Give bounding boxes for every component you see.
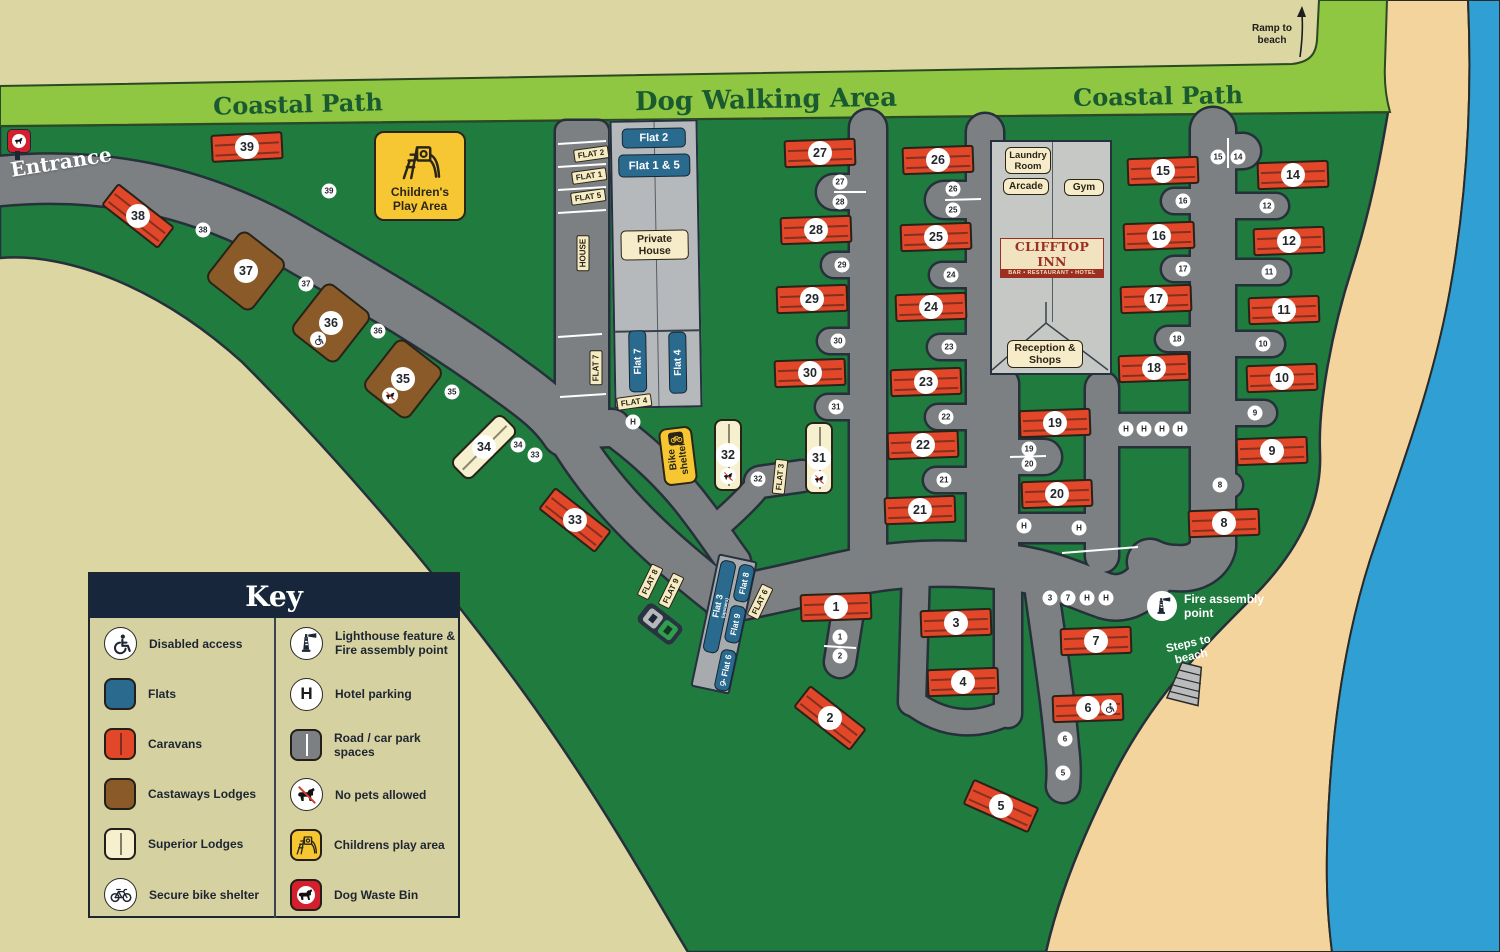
unit-25: 25 (900, 222, 973, 252)
parking-spot-H: H (1080, 591, 1095, 606)
parking-spot-21: 21 (937, 473, 952, 488)
flats-building-north: Flat 2 Flat 1 & 5 Private House Flat 7 F… (609, 119, 702, 408)
parking-spot-30: 30 (831, 334, 846, 349)
play-area-label: Children's Play Area (378, 185, 462, 213)
unit-30: 30 (774, 358, 847, 388)
unit-22: 22 (887, 430, 960, 460)
arcade-label: Arcade (1003, 178, 1049, 195)
unit-27: 27 (784, 138, 857, 168)
unit-number: 19 (1043, 411, 1067, 435)
bike-icon (104, 878, 137, 911)
key-item: Disabled access (90, 627, 274, 660)
parking-spot-9: 9 (1248, 406, 1263, 421)
unit-number: 24 (919, 295, 943, 319)
unit-number: 16 (1147, 224, 1171, 248)
private-house-label: Private House (620, 229, 689, 260)
playground-icon (398, 143, 442, 186)
parking-spot-7: 7 (1061, 591, 1076, 606)
unit-number: 4 (951, 670, 975, 694)
key-item: Flats (90, 678, 274, 710)
unit-39: 39 (210, 131, 283, 163)
unit-1: 1 (800, 592, 873, 622)
map-key-panel: Key Disabled accessFlatsCaravansCastaway… (88, 572, 460, 918)
dog-walking-area-label: Dog Walking Area (635, 83, 898, 118)
coastal-path-label-right: Coastal Path (1073, 80, 1243, 112)
ramp-to-beach-label: Ramp to beach (1243, 23, 1301, 47)
lighthouse-icon (1152, 597, 1172, 615)
lighthouse-icon (290, 627, 323, 660)
parking-spot-37: 37 (299, 277, 314, 292)
parking-spot-14: 14 (1231, 150, 1246, 165)
holiday-park-map: Coastal Path Dog Walking Area Coastal Pa… (0, 0, 1500, 952)
flat-8-text: Flat 8 (737, 571, 751, 595)
no-pets-icon (720, 468, 736, 484)
parking-spot-3: 3 (1043, 591, 1058, 606)
unit-number: 15 (1151, 159, 1175, 183)
parking-spot-18: 18 (1170, 332, 1185, 347)
unit-number: 3 (944, 611, 968, 635)
key-item-label: Dog Waste Bin (334, 888, 418, 902)
parking-spot-15: 15 (1211, 150, 1226, 165)
key-item: Road / car park spaces (276, 729, 460, 761)
flat-4-label: Flat 4 (668, 331, 687, 393)
childrens-play-area: Children's Play Area (374, 131, 466, 221)
unit-number: 7 (1084, 629, 1108, 653)
parking-spot-36: 36 (371, 324, 386, 339)
flat-7-text: Flat 7 (632, 348, 643, 374)
parking-spot-H: H (1119, 422, 1134, 437)
parking-spot-H: H (1155, 422, 1170, 437)
key-title: Key (245, 580, 303, 613)
flat-2-label: Flat 2 (622, 127, 686, 148)
unit-29: 29 (776, 284, 849, 314)
key-item: No pets allowed (276, 778, 460, 811)
unit-28: 28 (780, 215, 853, 245)
unit-21: 21 (884, 495, 957, 525)
unit-20: 20 (1021, 479, 1094, 509)
no-pets-icon (290, 778, 323, 811)
unit-number: 11 (1272, 298, 1296, 322)
secure-bike-shelter: Bike shelter (658, 425, 699, 487)
unit-14: 14 (1257, 160, 1330, 190)
parking-spot-H: H (1173, 422, 1188, 437)
inn-subtitle: BAR • RESTAURANT • HOTEL (1001, 269, 1103, 277)
flat-4-text: Flat 4 (672, 349, 683, 375)
parking-label: FLAT 7 (590, 351, 603, 386)
parking-spot-11: 11 (1262, 265, 1277, 280)
disabled-access-icon (104, 627, 137, 660)
unit-number: 12 (1277, 229, 1301, 253)
key-item-label: Lighthouse feature & Fire assembly point (335, 629, 460, 657)
parking-spot-H: H (1137, 422, 1152, 437)
key-item-label: Road / car park spaces (334, 731, 460, 759)
key-item-label: Caravans (148, 737, 202, 751)
unit-10: 10 (1246, 363, 1319, 393)
unit-number: 9 (1260, 439, 1284, 463)
unit-number: 25 (924, 225, 948, 249)
parking-spot-20: 20 (1022, 457, 1037, 472)
clifftop-inn-building: Laundry Room Arcade Gym CLIFFTOP INN BAR… (990, 140, 1112, 375)
disabled-access-icon (1101, 699, 1117, 715)
unit-number: 27 (808, 141, 832, 165)
unit-number: 38 (126, 204, 150, 228)
unit-number: 18 (1142, 356, 1166, 380)
laundry-room-label: Laundry Room (1005, 147, 1051, 174)
key-item-label: Castaways Lodges (148, 787, 256, 801)
unit-number: 35 (391, 367, 415, 391)
key-item-label: Childrens play area (334, 838, 445, 852)
play-area-icon (290, 829, 322, 861)
parking-spot-28: 28 (833, 195, 848, 210)
unit-number: 8 (1212, 511, 1236, 535)
unit-18: 18 (1118, 353, 1191, 383)
parking-spot-2: 2 (833, 649, 848, 664)
parking-spot-24: 24 (944, 268, 959, 283)
unit-11: 11 (1248, 295, 1321, 325)
unit-24: 24 (895, 292, 968, 322)
unit-31: 31 (805, 422, 833, 494)
unit-number: 28 (804, 218, 828, 242)
coastal-path-label-left: Coastal Path (213, 87, 383, 120)
hotel-parking-icon: H (290, 678, 323, 711)
key-item: HHotel parking (276, 678, 460, 711)
unit-15: 15 (1127, 156, 1200, 186)
key-item-label: Secure bike shelter (149, 888, 259, 902)
unit-17: 17 (1120, 284, 1193, 314)
castaways-lodges-swatch (104, 778, 136, 810)
parking-spot-10: 10 (1256, 337, 1271, 352)
parking-spot-17: 17 (1176, 262, 1191, 277)
key-item-label: Flats (148, 687, 176, 701)
parking-spot-H: H (1072, 521, 1087, 536)
key-item: Lighthouse feature & Fire assembly point (276, 627, 460, 660)
key-item-label: Disabled access (149, 637, 242, 651)
key-item-label: Hotel parking (335, 687, 412, 701)
flat-7-label: Flat 7 (628, 330, 647, 392)
fire-assembly-label: Fire assembly point (1184, 592, 1276, 620)
unit-number: 14 (1281, 163, 1305, 187)
key-item: Secure bike shelter (90, 878, 274, 911)
parking-spot-25: 25 (946, 203, 961, 218)
no-pets-icon (382, 388, 398, 404)
parking-spot-38: 38 (196, 223, 211, 238)
disabled-access-icon (310, 332, 326, 348)
unit-number: 30 (798, 361, 822, 385)
key-item: Dog Waste Bin (276, 879, 460, 911)
unit-23: 23 (890, 367, 963, 397)
parking-spot-12: 12 (1260, 199, 1275, 214)
unit-number: 29 (800, 287, 824, 311)
unit-number: 37 (234, 259, 258, 283)
parking-spot-31: 31 (829, 400, 844, 415)
parking-spot-H: H (1017, 519, 1032, 534)
parking-spot-22: 22 (939, 410, 954, 425)
unit-number: 26 (926, 148, 950, 172)
unit-3: 3 (920, 608, 993, 638)
parking-spot-5: 5 (1056, 766, 1071, 781)
wheelchair-icon (718, 677, 727, 686)
unit-number: 21 (908, 498, 932, 522)
flat-6-text: Flat 6 (719, 654, 733, 678)
unit-4: 4 (927, 667, 1000, 697)
unit-number: 5 (989, 794, 1013, 818)
fire-assembly-icon (1147, 591, 1177, 621)
unit-26: 26 (902, 145, 975, 175)
superior-lodges-swatch (104, 828, 136, 860)
unit-number: 34 (472, 435, 496, 459)
key-item-label: Superior Lodges (148, 837, 243, 851)
key-item: Castaways Lodges (90, 778, 274, 810)
parking-spot-23: 23 (942, 340, 957, 355)
unit-number: 10 (1270, 366, 1294, 390)
dog-icon (12, 134, 26, 148)
flat-9-text: Flat 9 (728, 612, 742, 636)
unit-number: 39 (235, 135, 259, 159)
parking-spot-8: 8 (1213, 478, 1228, 493)
parking-spot-29: 29 (835, 258, 850, 273)
bike-shelter-label: Bike shelter (664, 431, 692, 487)
unit-number: 36 (319, 311, 343, 335)
dog-waste-bin-icon (7, 129, 31, 153)
parking-spot-26: 26 (946, 182, 961, 197)
unit-16: 16 (1123, 221, 1196, 251)
flat-1-5-label: Flat 1 & 5 (618, 153, 690, 177)
parking-label: HOUSE (577, 235, 590, 271)
parking-spot-16: 16 (1176, 194, 1191, 209)
gym-label: Gym (1064, 179, 1104, 196)
dog-waste-bin-post (15, 151, 20, 160)
parking-spot-27: 27 (833, 175, 848, 190)
key-item: Superior Lodges (90, 828, 274, 860)
unit-6: 6 (1052, 693, 1125, 723)
inn-name: CLIFFTOP INN (1001, 239, 1103, 269)
unit-number: 32 (716, 443, 740, 467)
parking-spot-1: 1 (833, 630, 848, 645)
unit-number: 17 (1144, 287, 1168, 311)
parking-spot-33: 33 (528, 448, 543, 463)
unit-9: 9 (1236, 436, 1309, 466)
unit-number: 23 (914, 370, 938, 394)
key-item: Childrens play area (276, 829, 460, 861)
parking-spot-6: 6 (1058, 732, 1073, 747)
unit-number: 33 (563, 508, 587, 532)
parking-spot-32: 32 (751, 472, 766, 487)
road-swatch (290, 729, 322, 761)
unit-number: 1 (824, 595, 848, 619)
parking-spot-35: 35 (445, 385, 460, 400)
unit-32: 32 (714, 419, 742, 491)
clifftop-inn-sign: CLIFFTOP INN BAR • RESTAURANT • HOTEL (1000, 238, 1104, 278)
key-column-right: Lighthouse feature & Fire assembly point… (276, 618, 460, 920)
reception-shops-label: Reception & Shops (1007, 340, 1083, 368)
unit-number: 2 (818, 706, 842, 730)
unit-19: 19 (1019, 408, 1092, 438)
unit-number: 6 (1076, 696, 1100, 720)
unit-number: 31 (807, 446, 831, 470)
key-header: Key (90, 574, 458, 618)
parking-spot-34: 34 (511, 438, 526, 453)
caravans-swatch (104, 728, 136, 760)
unit-12: 12 (1253, 226, 1326, 256)
unit-number: 22 (911, 433, 935, 457)
parking-spot-19: 19 (1022, 442, 1037, 457)
key-item-label: No pets allowed (335, 788, 426, 802)
key-item: Caravans (90, 728, 274, 760)
unit-7: 7 (1060, 626, 1133, 656)
flats-swatch (104, 678, 136, 710)
unit-number: 20 (1045, 482, 1069, 506)
parking-spot-39: 39 (322, 184, 337, 199)
key-column-left: Disabled accessFlatsCaravansCastaways Lo… (90, 618, 274, 920)
no-pets-icon (811, 471, 827, 487)
parking-spot-H: H (1099, 591, 1114, 606)
dog-waste-bin-icon (290, 879, 322, 911)
parking-spot-H: H (626, 415, 641, 430)
unit-8: 8 (1188, 508, 1261, 538)
